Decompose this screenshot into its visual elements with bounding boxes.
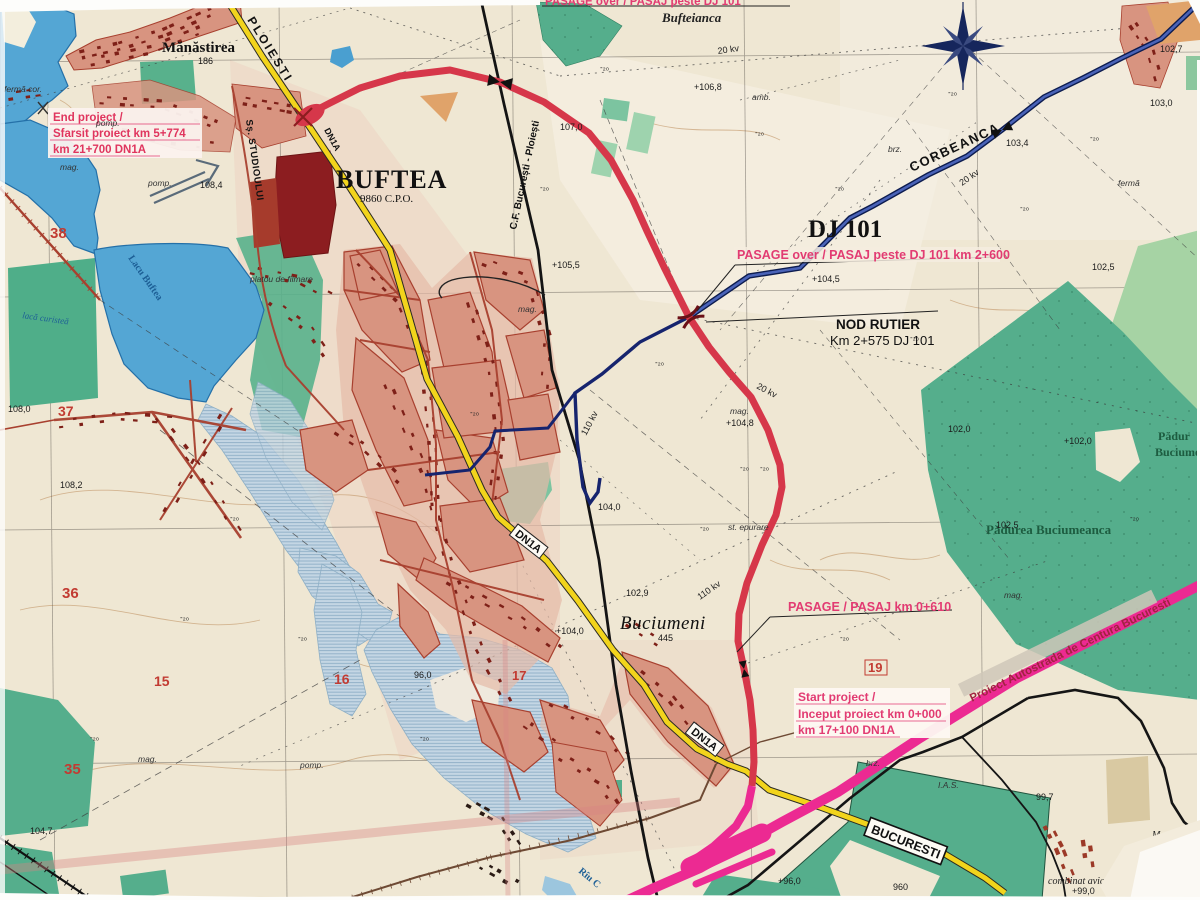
svg-text:102,0: 102,0: [948, 424, 971, 434]
svg-text:NOD RUTIER: NOD RUTIER: [836, 317, 920, 332]
svg-text:+104,0: +104,0: [556, 626, 584, 636]
svg-text:36: 36: [62, 585, 79, 602]
svg-text:PASAGE / PASAJ km 0+610: PASAGE / PASAJ km 0+610: [788, 600, 951, 614]
svg-text:-₂₀: -₂₀: [655, 358, 664, 367]
svg-text:pomp.: pomp.: [299, 760, 324, 770]
svg-text:102,7: 102,7: [1160, 44, 1183, 54]
svg-text:fermă: fermă: [1118, 178, 1140, 188]
svg-text:17: 17: [512, 668, 526, 683]
svg-text:+99,0: +99,0: [1072, 886, 1095, 896]
svg-text:-₂₀: -₂₀: [1020, 203, 1029, 212]
svg-text:Bufteianca: Bufteianca: [661, 10, 722, 25]
svg-text:445: 445: [658, 633, 673, 643]
svg-text:BUFTEA: BUFTEA: [336, 165, 447, 194]
svg-text:35: 35: [64, 761, 81, 778]
svg-text:km 17+100 DN1A: km 17+100 DN1A: [798, 723, 895, 737]
svg-text:platou de filmare: platou de filmare: [249, 274, 313, 284]
svg-text:DJ 101: DJ 101: [808, 216, 882, 243]
svg-text:108,0: 108,0: [8, 404, 31, 414]
svg-text:-₂₀: -₂₀: [910, 333, 919, 342]
svg-text:37: 37: [58, 403, 74, 419]
svg-text:Inceput proiect km 0+000: Inceput proiect km 0+000: [798, 707, 942, 721]
svg-text:+105,5: +105,5: [552, 260, 580, 270]
svg-text:-₂₀: -₂₀: [420, 733, 429, 742]
svg-text:+104,8: +104,8: [726, 418, 754, 428]
svg-text:pomp.: pomp.: [95, 118, 120, 128]
svg-text:-₂₀: -₂₀: [835, 183, 844, 192]
svg-text:-₂₀: -₂₀: [1090, 133, 1099, 142]
svg-text:-₂₀: -₂₀: [840, 633, 849, 642]
svg-text:brz.: brz.: [866, 758, 880, 768]
svg-text:Sfarsit proiect km 5+774: Sfarsit proiect km 5+774: [53, 128, 186, 140]
svg-text:amb.: amb.: [752, 92, 771, 102]
svg-text:+102,0: +102,0: [1064, 436, 1092, 446]
svg-text:fermă cor.: fermă cor.: [4, 84, 42, 94]
svg-text:38: 38: [50, 225, 67, 242]
svg-text:mag.: mag.: [730, 406, 749, 416]
svg-text:102,5: 102,5: [996, 520, 1019, 530]
svg-text:-₂₀: -₂₀: [470, 408, 479, 417]
svg-text:-₂₀: -₂₀: [600, 63, 609, 72]
svg-text:I.A.S.: I.A.S.: [938, 780, 959, 790]
svg-text:brz.: brz.: [888, 144, 902, 154]
svg-text:-₂₀: -₂₀: [700, 523, 709, 532]
svg-text:mag.: mag.: [60, 162, 79, 172]
svg-text:-₂₀: -₂₀: [180, 613, 189, 622]
svg-text:102,5: 102,5: [1092, 262, 1115, 272]
svg-text:Buciumeni: Buciumeni: [620, 613, 706, 634]
svg-text:km 21+700 DN1A: km 21+700 DN1A: [53, 144, 146, 156]
svg-text:mag.: mag.: [518, 304, 537, 314]
svg-text:+104,5: +104,5: [812, 274, 840, 284]
svg-text:-₂₀: -₂₀: [90, 733, 99, 742]
svg-text:Start project /: Start project /: [798, 690, 876, 704]
svg-text:-₂₀: -₂₀: [230, 513, 239, 522]
svg-text:-₂₀: -₂₀: [298, 633, 307, 642]
svg-text:108,2: 108,2: [60, 480, 83, 490]
svg-text:16: 16: [334, 671, 350, 687]
svg-text:99,7: 99,7: [1036, 792, 1054, 802]
svg-text:15: 15: [154, 673, 170, 689]
svg-text:107,0: 107,0: [560, 122, 583, 132]
svg-text:104,7: 104,7: [30, 826, 53, 836]
svg-text:mag.: mag.: [138, 754, 157, 764]
svg-text:-₂₀: -₂₀: [948, 88, 957, 97]
svg-text:103,0: 103,0: [1150, 98, 1173, 108]
svg-text:108,4: 108,4: [200, 180, 223, 190]
svg-text:-₂₀: -₂₀: [740, 463, 749, 472]
svg-text:PASAGE over / PASAJ peste DJ 1: PASAGE over / PASAJ peste DJ 101 km 2+60…: [737, 248, 1010, 262]
svg-text:9860 C.P.O.: 9860 C.P.O.: [360, 193, 413, 205]
svg-text:-₂₀: -₂₀: [755, 128, 764, 137]
svg-text:Pădur: Pădur: [1158, 429, 1191, 443]
svg-text:+106,8: +106,8: [694, 82, 722, 92]
svg-text:104,0: 104,0: [598, 502, 621, 512]
svg-text:PASAGE over / PASAJ peste DJ 1: PASAGE over / PASAJ peste DJ 101: [545, 0, 741, 8]
svg-text:pomp.: pomp.: [147, 178, 172, 188]
svg-text:19: 19: [868, 660, 882, 675]
svg-text:mag.: mag.: [1004, 590, 1023, 600]
svg-text:96,0: 96,0: [414, 670, 432, 680]
svg-text:Mănăstirea: Mănăstirea: [162, 40, 236, 56]
svg-text:+96,0: +96,0: [778, 876, 801, 886]
svg-text:st. epurare: st. epurare: [728, 522, 769, 532]
svg-text:960: 960: [893, 882, 908, 892]
svg-text:-₂₀: -₂₀: [1130, 513, 1139, 522]
svg-text:186: 186: [198, 56, 213, 66]
svg-text:Buciume: Buciume: [1155, 445, 1200, 459]
svg-text:103,4: 103,4: [1006, 138, 1029, 148]
svg-text:102,9: 102,9: [626, 588, 649, 598]
svg-text:-₂₀: -₂₀: [540, 183, 549, 192]
svg-text:-₂₀: -₂₀: [760, 463, 769, 472]
